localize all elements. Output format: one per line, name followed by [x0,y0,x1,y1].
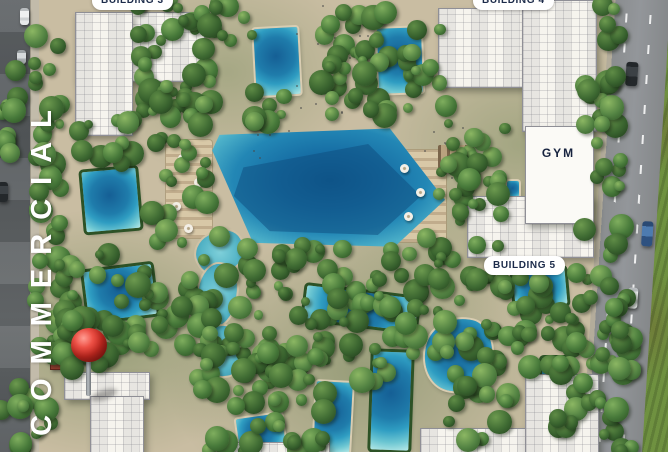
tree [599,16,616,33]
tree [239,431,263,452]
tree [238,11,250,23]
pedestrian-dot [257,134,259,136]
tree [407,20,427,40]
tree [458,168,481,191]
tree [428,268,450,290]
umbrella [404,212,413,221]
tree [454,295,465,306]
tree [243,259,266,282]
pedestrian-dot [322,5,324,7]
tree [595,347,610,362]
pedestrian-dot [341,111,343,113]
tree [227,397,246,416]
tree [254,310,263,319]
tree [499,123,511,135]
tree [417,228,437,248]
tree [188,112,213,137]
tree [315,431,330,446]
pedestrian-dot [315,103,317,105]
tree [369,343,381,355]
tree [435,95,457,117]
tree [324,61,335,72]
tree [28,57,41,70]
tree [233,385,244,396]
tree [573,218,596,241]
tree [269,363,293,387]
tree [422,59,439,76]
tree [114,294,129,309]
tree [138,57,153,72]
tree [614,181,624,191]
tree [321,15,339,33]
building-3-badge[interactable]: BUILDING 3 [92,0,173,10]
tree [325,91,339,105]
tree [565,313,576,324]
pedestrian-dot [451,177,453,179]
tree [327,288,349,310]
car [20,8,29,25]
tree [511,341,524,354]
tree [245,83,264,102]
tree [608,3,620,15]
tree [0,143,20,163]
tree [477,347,495,365]
tree [296,394,307,405]
tree [372,272,387,287]
tree [276,89,291,104]
tree [5,60,26,81]
tree [111,274,124,287]
pedestrian-dot [424,150,426,152]
tree [606,233,628,255]
tree [307,348,324,365]
tree [209,0,223,14]
tree [600,277,618,295]
tree [195,96,212,113]
tree [285,248,307,270]
tree [228,296,251,319]
tree [160,80,172,92]
pin-head-icon [71,328,107,362]
swimming-pool [81,168,140,232]
tree [149,90,173,114]
car [0,182,8,202]
tree [395,312,418,335]
tree [604,397,628,421]
building-4-badge[interactable]: BUILDING 4 [473,0,554,10]
tree [247,30,257,40]
umbrella [184,224,193,233]
tree [455,332,474,351]
tree [226,342,239,355]
tree [177,237,187,247]
tree [156,35,167,46]
tree [195,191,219,215]
car [641,221,654,247]
tree [247,286,261,300]
tree [374,1,397,24]
tree [599,429,610,440]
building-5-badge[interactable]: BUILDING 5 [484,256,565,275]
gym-footprint [525,126,594,224]
tree [369,33,384,48]
tree [605,298,624,317]
tree [250,418,266,434]
tree [147,134,165,152]
tree [178,15,188,25]
car [625,62,638,87]
tree [394,268,409,283]
tree [549,409,568,428]
tree [182,63,206,87]
tree [521,327,537,343]
tree [67,290,77,300]
tree [333,240,352,259]
pedestrian-dot [300,107,302,109]
tree [449,188,462,201]
tree [573,373,593,393]
tree [173,3,183,13]
tree [498,280,512,294]
pedestrian-dot [296,85,298,87]
tree [339,333,363,357]
tree [443,416,454,427]
tree [594,116,610,132]
gym-label: GYM [525,146,592,160]
tree [242,391,265,414]
tree [209,226,230,247]
tree [434,24,446,36]
tree [200,358,213,371]
tree [576,115,595,134]
tree [237,238,258,259]
tree [103,142,123,162]
pedestrian-dot [462,127,464,129]
umbrella [416,188,425,197]
pedestrian-dot [359,35,361,37]
pedestrian-dot [433,131,435,133]
building-footprint [90,396,144,452]
commercial-label: COMMERCIAL [20,81,64,451]
tree [487,410,511,434]
tree [611,321,629,339]
tree [214,263,239,288]
tree [71,140,93,162]
tree [419,305,429,315]
tree [155,219,178,242]
tree [325,107,339,121]
tree [541,326,555,340]
tree [363,101,380,118]
tree [192,38,214,60]
tree [567,263,586,282]
tree [446,137,460,151]
tree [198,254,210,266]
tree [466,268,489,291]
tree [614,444,628,452]
tree [433,310,456,333]
tree [231,358,256,383]
tree [176,92,191,107]
tree [128,332,150,354]
tree [457,376,477,396]
umbrella [400,164,409,173]
tree [205,426,230,451]
tree [432,75,448,91]
tree [303,374,315,386]
pedestrian-dot [253,150,255,152]
tree [529,273,549,293]
tree [69,261,85,277]
tree [196,167,208,179]
tree [348,88,363,103]
tree [577,79,600,102]
pedestrian-dot [288,130,290,132]
tree [402,247,417,262]
tree [117,111,139,133]
tree [262,326,277,341]
tree [151,316,168,333]
tree [468,236,485,253]
tree [89,266,106,283]
tree [403,44,420,61]
tree [286,335,308,357]
tree [493,206,509,222]
tree [479,386,495,402]
tree [440,156,457,173]
site-plan-map: BUILDING 3 BUILDING 4 BUILDING 5 GYM COM… [0,0,668,452]
tree [181,271,199,289]
tree [43,63,56,76]
tree [608,357,631,380]
tree [24,24,48,48]
pedestrian-dot [296,33,298,35]
tree [179,139,191,151]
tree [257,342,279,364]
tree [434,259,443,268]
tree [444,119,453,128]
pedestrian-dot [349,57,351,59]
tree [448,395,465,412]
tree [62,310,83,331]
tree [433,188,445,200]
tree [349,367,374,392]
tree [50,38,66,54]
tree [125,272,151,298]
building-footprint [522,0,597,132]
tree [403,103,413,113]
